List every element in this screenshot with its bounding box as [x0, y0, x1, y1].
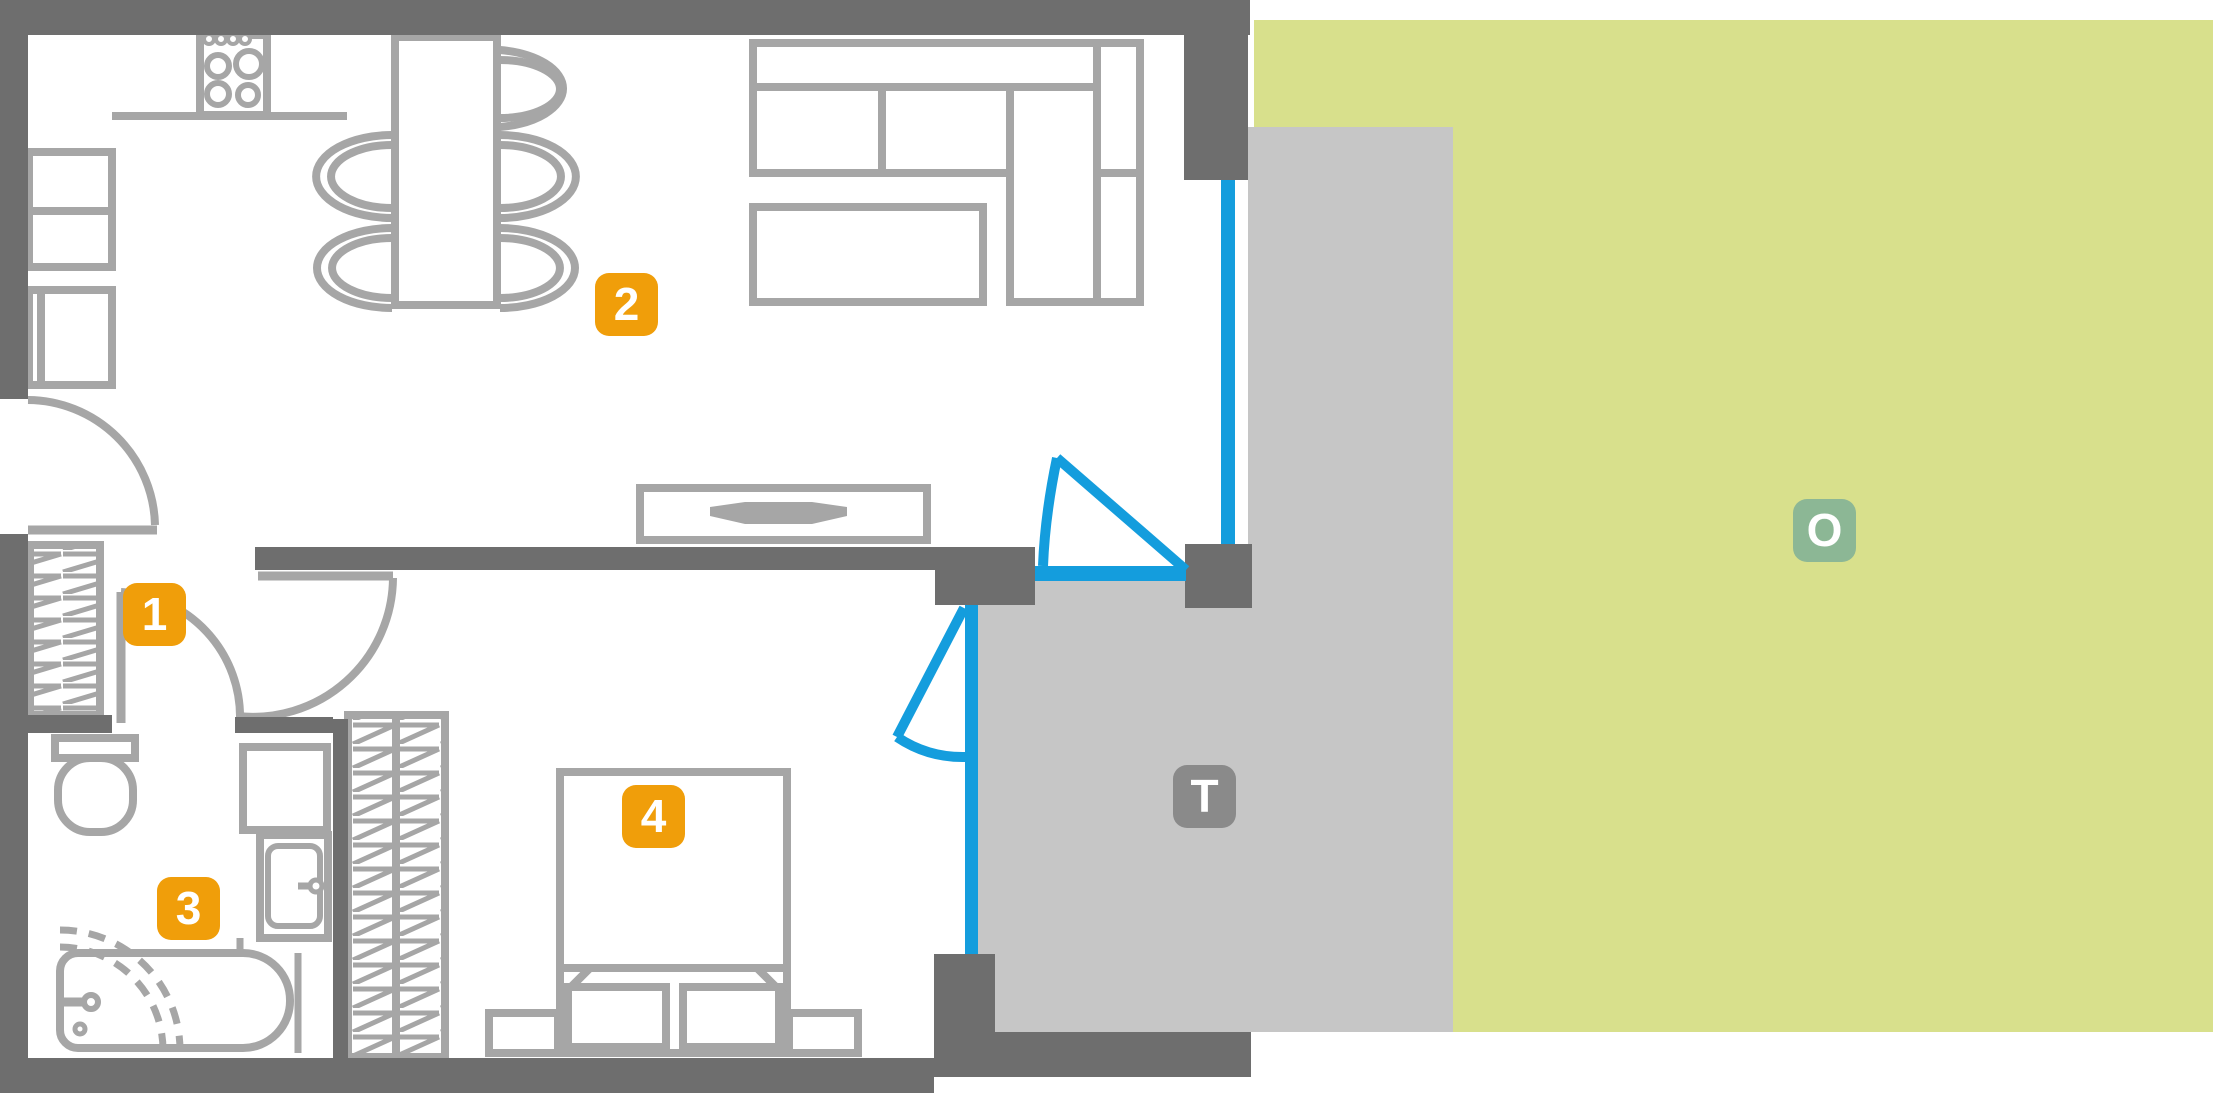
- burner-icon: [207, 55, 229, 77]
- bathtub-overflow-icon: [75, 1024, 85, 1034]
- bedroom-door-swing-leaf: [897, 608, 964, 737]
- wall-bathroom-right: [333, 719, 348, 1062]
- chair: [500, 145, 561, 208]
- pillow: [568, 987, 666, 1047]
- washing-machine-knob-icon: [310, 880, 322, 892]
- wardrobe-hatch: [351, 719, 393, 1053]
- nightstand: [789, 1013, 858, 1053]
- wall-top: [0, 0, 1250, 35]
- burner-icon: [207, 83, 229, 105]
- room-label-hall: 1: [123, 583, 186, 646]
- room-label-living: 2: [595, 273, 658, 336]
- stove-knob-icon: [228, 34, 238, 44]
- window-bedroom-east: [965, 605, 978, 954]
- room-label-bedroom: 4: [622, 785, 685, 848]
- wall-bottom: [0, 1058, 934, 1093]
- bathroom-vanity: [243, 747, 327, 830]
- terrace-area-upper: [1248, 127, 1453, 580]
- burner-icon: [236, 51, 262, 77]
- bedroom-door-swing-arc: [897, 737, 966, 757]
- area-label-outdoor: O: [1793, 499, 1856, 562]
- burner-icon: [238, 85, 258, 105]
- wardrobe-hatch: [399, 719, 442, 1053]
- wall-left-lower: [0, 534, 28, 1093]
- entrance-door-arc: [28, 400, 155, 525]
- dining-table: [395, 37, 497, 305]
- room-label-bathroom: 3: [157, 877, 220, 940]
- window-living-east: [1221, 180, 1235, 544]
- area-label-terrace: T: [1173, 765, 1236, 828]
- stove-knob-icon: [240, 34, 250, 44]
- nightstand: [489, 1013, 558, 1053]
- chair: [331, 145, 392, 208]
- wall-pillar: [1185, 544, 1252, 608]
- pillow: [683, 987, 779, 1047]
- terrace-door-swing-leaf: [1057, 458, 1186, 570]
- stove-knob-icon: [216, 34, 226, 44]
- terrace-door-living: [1035, 566, 1186, 581]
- floor-plan: 1 2 3 4 T O: [0, 0, 2213, 1093]
- wall-bathroom-top-right: [235, 717, 333, 733]
- chair: [332, 238, 392, 298]
- bedroom-door-arc: [238, 578, 393, 717]
- wall-left-upper: [0, 0, 28, 399]
- wall-northeast-corner: [1184, 35, 1248, 180]
- wall-bathroom-top-left: [28, 715, 112, 733]
- terrace-door-swing-arc: [1043, 458, 1057, 566]
- toilet-bowl: [58, 758, 133, 832]
- chair: [500, 238, 560, 298]
- wall-bedroom-corner: [934, 954, 995, 1032]
- stove-knob-icon: [204, 34, 214, 44]
- wall-interior-living-bedroom: [255, 547, 1035, 570]
- floor-plan-drawing: [0, 0, 2213, 1093]
- hall-closet-hatch: [34, 549, 96, 711]
- bathtub-drain-icon: [84, 995, 98, 1009]
- coffee-table: [753, 207, 983, 302]
- wall-terrace-bottom: [934, 1032, 1251, 1077]
- wall-interior-block: [935, 570, 1035, 605]
